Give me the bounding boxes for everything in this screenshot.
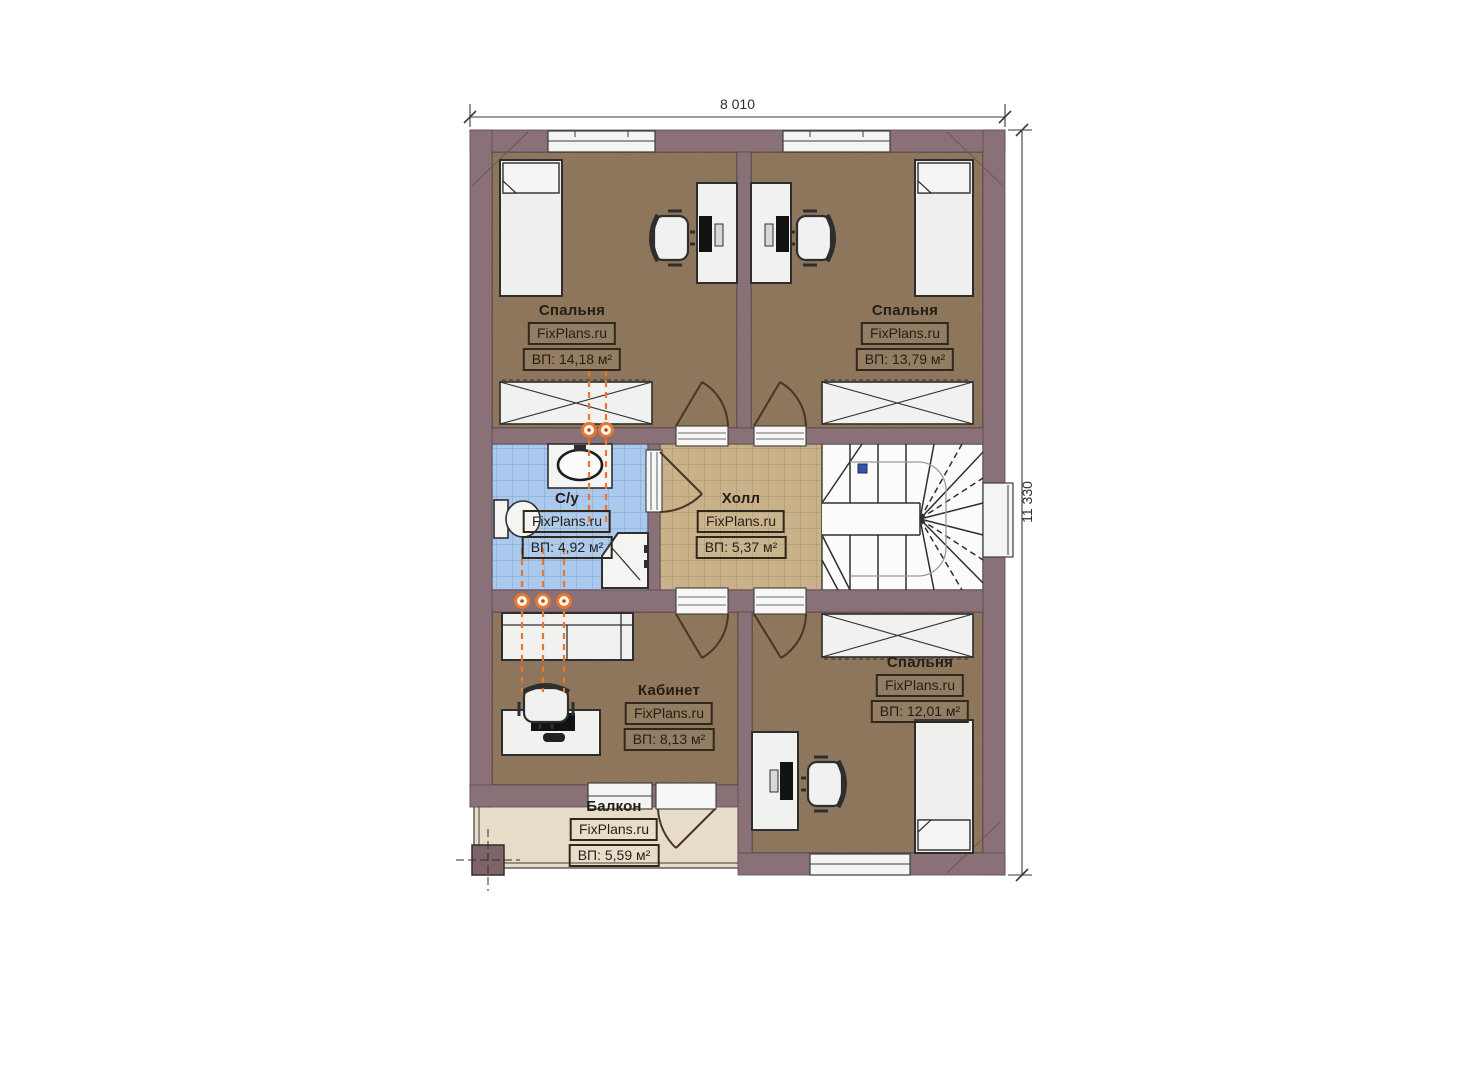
- monitor: [699, 216, 712, 252]
- faucet: [574, 445, 586, 451]
- wall-mid-upper: [492, 428, 983, 444]
- area-box: ВП: 4,92 м²: [522, 536, 613, 559]
- stairs-marker: [858, 464, 867, 473]
- room-label-hall: Холл FixPlans.ru ВП: 5,37 м²: [696, 490, 787, 559]
- room-label-balcony: Балкон FixPlans.ru ВП: 5,59 м²: [569, 798, 660, 867]
- room-label-bathroom: С/у FixPlans.ru ВП: 4,92 м²: [522, 490, 613, 559]
- brand-box: FixPlans.ru: [697, 510, 785, 533]
- room-name: Кабинет: [638, 682, 700, 699]
- room-name: Холл: [722, 490, 760, 507]
- window-bedroom-top-left: [548, 131, 655, 152]
- room-name: С/у: [555, 490, 579, 507]
- window-bedroom-bottom: [810, 854, 910, 875]
- area-box: ВП: 5,37 м²: [696, 536, 787, 559]
- brand-box: FixPlans.ru: [625, 702, 713, 725]
- brand-box: FixPlans.ru: [861, 322, 949, 345]
- room-name: Спальня: [539, 302, 605, 319]
- monitor: [780, 762, 793, 800]
- brand-box: FixPlans.ru: [528, 322, 616, 345]
- room-name: Балкон: [586, 798, 641, 815]
- window-bedroom-top-right: [783, 131, 890, 152]
- area-box: ВП: 5,59 м²: [569, 844, 660, 867]
- room-name: Спальня: [872, 302, 938, 319]
- brand-box: FixPlans.ru: [523, 510, 611, 533]
- window-stairs-niche: [983, 483, 1013, 557]
- room-label-bedroom-top-left: Спальня FixPlans.ru ВП: 14,18 м²: [523, 302, 621, 371]
- wall-office-bedroom-divider: [738, 612, 752, 853]
- dimension-width-label: 8 010: [470, 96, 1005, 112]
- area-box: ВП: 12,01 м²: [871, 700, 969, 723]
- dimension-height-label: 11 330: [1019, 437, 1035, 567]
- brand-box: FixPlans.ru: [570, 818, 658, 841]
- sink: [558, 450, 602, 480]
- monitor: [776, 216, 789, 252]
- floor-plan-canvas: 8 010 11 330 Спальня FixPlans.ru ВП: 14,…: [0, 0, 1473, 1080]
- brand-box: FixPlans.ru: [876, 674, 964, 697]
- area-box: ВП: 13,79 м²: [856, 348, 954, 371]
- room-label-bedroom-top-right: Спальня FixPlans.ru ВП: 13,79 м²: [856, 302, 954, 371]
- area-box: ВП: 14,18 м²: [523, 348, 621, 371]
- wall-left: [470, 130, 492, 807]
- room-label-office: Кабинет FixPlans.ru ВП: 8,13 м²: [624, 682, 715, 751]
- area-box: ВП: 8,13 м²: [624, 728, 715, 751]
- room-label-bedroom-bottom: Спальня FixPlans.ru ВП: 12,01 м²: [871, 654, 969, 723]
- wall-bedrooms-divider: [737, 152, 751, 428]
- room-name: Спальня: [887, 654, 953, 671]
